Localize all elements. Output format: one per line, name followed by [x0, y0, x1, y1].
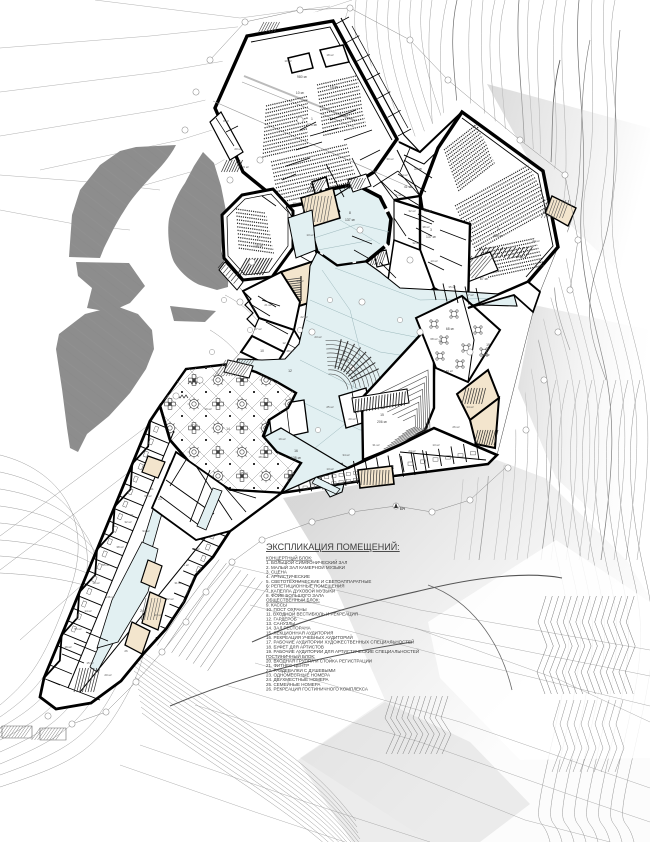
- svg-text:22 м²: 22 м²: [166, 597, 173, 601]
- svg-text:15 м²: 15 м²: [86, 661, 93, 665]
- svg-text:25 м²: 25 м²: [192, 547, 199, 551]
- svg-text:34 м²: 34 м²: [400, 173, 407, 177]
- svg-text:48 м²: 48 м²: [258, 455, 265, 459]
- svg-text:34 м²: 34 м²: [466, 405, 473, 409]
- svg-text:18 м²: 18 м²: [92, 581, 99, 585]
- svg-text:3.49 м²: 3.49 м²: [443, 369, 453, 373]
- svg-text:48 м²: 48 м²: [286, 349, 293, 353]
- svg-text:20 м²: 20 м²: [348, 417, 355, 421]
- svg-text:13 м²: 13 м²: [306, 233, 313, 237]
- svg-text:19 м²: 19 м²: [204, 407, 211, 411]
- svg-text:34 м²: 34 м²: [414, 167, 423, 171]
- svg-text:19: 19: [486, 343, 490, 347]
- svg-text:ЭКСПЛИКАЦИЯ ПОМЕЩЕНИЙ:: ЭКСПЛИКАЦИЯ ПОМЕЩЕНИЙ:: [266, 541, 400, 552]
- svg-text:137 м²: 137 м²: [345, 218, 356, 222]
- svg-text:25 м²: 25 м²: [326, 405, 333, 409]
- svg-text:67 м²: 67 м²: [466, 293, 473, 297]
- svg-text:24: 24: [140, 609, 144, 613]
- svg-text:7: 7: [257, 237, 259, 241]
- svg-text:1: 1: [311, 117, 313, 121]
- svg-text:10 м²: 10 м²: [284, 59, 291, 63]
- svg-text:60 м²: 60 м²: [144, 494, 151, 498]
- svg-text:32 м²: 32 м²: [412, 241, 419, 245]
- svg-text:910 м²: 910 м²: [339, 358, 350, 362]
- svg-text:18 м²: 18 м²: [330, 85, 339, 89]
- svg-text:980 м²: 980 м²: [297, 75, 308, 79]
- svg-text:26: 26: [124, 649, 128, 653]
- svg-text:68 м²: 68 м²: [446, 327, 455, 331]
- svg-text:20 м²: 20 м²: [234, 147, 241, 151]
- svg-text:12: 12: [288, 369, 292, 373]
- svg-text:31 м²: 31 м²: [372, 443, 379, 447]
- svg-text:32 м²: 32 м²: [124, 520, 131, 524]
- svg-text:35 м²: 35 м²: [516, 255, 523, 259]
- svg-text:3: 3: [301, 69, 303, 73]
- svg-text:38 м²: 38 м²: [422, 225, 429, 229]
- svg-text:137 м²: 137 м²: [426, 235, 437, 239]
- svg-text:9: 9: [253, 307, 255, 311]
- svg-text:138 м²: 138 м²: [291, 456, 302, 460]
- svg-text:17 м²: 17 м²: [190, 423, 197, 427]
- svg-text:41 м²: 41 м²: [404, 185, 413, 189]
- svg-text:31 м²: 31 м²: [174, 581, 181, 585]
- svg-text:21: 21: [158, 497, 162, 501]
- svg-text:2: 2: [497, 227, 499, 231]
- svg-text:574 м²: 574 м²: [307, 123, 318, 127]
- svg-text:21: 21: [130, 513, 134, 517]
- svg-text:13 м²: 13 м²: [326, 467, 333, 471]
- svg-text:45 м²: 45 м²: [240, 471, 247, 475]
- svg-text:23 м²: 23 м²: [314, 335, 321, 339]
- svg-text:4 м²: 4 м²: [183, 563, 189, 567]
- svg-text:65 м²: 65 м²: [102, 563, 109, 567]
- svg-text:13 м²: 13 м²: [432, 443, 439, 447]
- svg-text:21 м²: 21 м²: [264, 303, 271, 307]
- svg-text:16: 16: [294, 449, 298, 453]
- svg-text:14: 14: [226, 427, 230, 431]
- svg-text:34 м²: 34 м²: [296, 279, 303, 283]
- svg-text:10 м²: 10 м²: [296, 91, 305, 95]
- svg-text:22 м²: 22 м²: [300, 315, 307, 319]
- svg-text:21: 21: [150, 487, 154, 491]
- svg-text:68 м²: 68 м²: [430, 337, 437, 341]
- svg-text:8 м²: 8 м²: [223, 119, 229, 123]
- svg-text:14 м²: 14 м²: [84, 609, 91, 613]
- svg-text:38 м²: 38 м²: [424, 209, 433, 213]
- svg-text:24 м²: 24 м²: [408, 449, 415, 453]
- svg-text:23 м²: 23 м²: [532, 239, 539, 243]
- svg-text:67 м²: 67 м²: [480, 277, 489, 281]
- svg-text:23 м²: 23 м²: [154, 613, 161, 617]
- svg-text:30 м²: 30 м²: [386, 157, 393, 161]
- svg-text:19 м²: 19 м²: [482, 353, 489, 357]
- svg-text:Вч: Вч: [400, 506, 406, 511]
- svg-text:206 м²: 206 м²: [377, 420, 388, 424]
- svg-text:138 м²: 138 м²: [253, 244, 264, 248]
- svg-text:136 м²: 136 м²: [106, 595, 115, 599]
- svg-text:38 м²: 38 м²: [116, 545, 123, 549]
- svg-text:26. РЕКРЕАЦИЯ ГОСТИНИЧНОГО КОМ: 26. РЕКРЕАЦИЯ ГОСТИНИЧНОГО КОМПЛЕКСА: [266, 687, 368, 692]
- svg-text:6 м²: 6 м²: [243, 165, 249, 169]
- svg-text:26 м²: 26 м²: [452, 425, 459, 429]
- svg-text:3: 3: [430, 228, 432, 232]
- svg-text:34 м²: 34 м²: [342, 453, 349, 457]
- svg-text:8: 8: [349, 211, 351, 215]
- svg-text:20 м²: 20 м²: [104, 673, 111, 677]
- svg-text:10: 10: [260, 349, 264, 353]
- svg-text:15: 15: [380, 413, 384, 417]
- svg-text:499 м²: 499 м²: [493, 234, 504, 238]
- svg-text:12: 12: [282, 341, 286, 345]
- svg-text:19 м²: 19 м²: [64, 645, 71, 649]
- svg-text:55 м²: 55 м²: [74, 627, 81, 631]
- svg-text:19 м²: 19 м²: [278, 437, 285, 441]
- svg-text:13 м²: 13 м²: [430, 259, 437, 263]
- svg-text:32 м²: 32 м²: [408, 209, 415, 213]
- svg-text:94 м²: 94 м²: [142, 529, 149, 533]
- svg-text:17 м²: 17 м²: [292, 201, 299, 205]
- svg-text:11: 11: [342, 351, 346, 355]
- svg-text:18 м²: 18 м²: [326, 53, 333, 57]
- svg-text:27 м²: 27 м²: [254, 327, 261, 331]
- svg-text:35 м²: 35 м²: [448, 285, 455, 289]
- svg-text:18: 18: [438, 339, 442, 343]
- svg-text:41 м²: 41 м²: [394, 193, 401, 197]
